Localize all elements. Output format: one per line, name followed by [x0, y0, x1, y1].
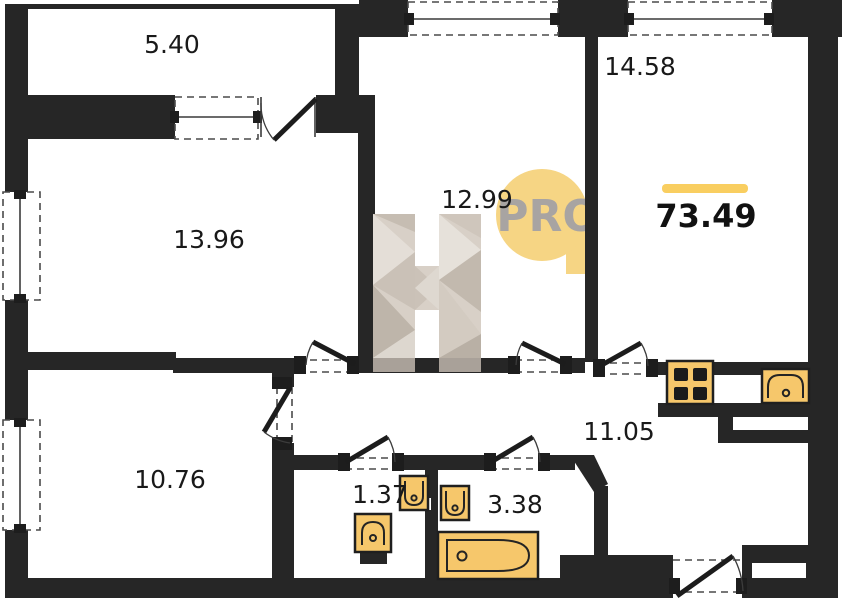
- total-area-bar: [662, 184, 748, 193]
- stove-icon: [667, 361, 713, 404]
- room-label-wc: 1.37: [352, 480, 408, 509]
- floor-plan-page: PRO: [0, 0, 844, 600]
- door-room-13-96: [294, 342, 359, 374]
- room-label-14-58: 14.58: [604, 52, 676, 81]
- room-label-balcony: 5.40: [144, 30, 200, 59]
- door-room-10-76: [264, 377, 292, 450]
- window-left-10-76: [3, 418, 40, 533]
- room-label-hallway: 11.05: [583, 417, 655, 446]
- door-entrance: [669, 556, 747, 596]
- room-label-12-99: 12.99: [441, 185, 513, 214]
- toilet-icon: [355, 514, 391, 564]
- window-top-14-58: [624, 2, 774, 35]
- window-balcony: [170, 97, 262, 139]
- door-balcony: [261, 97, 316, 140]
- wall-niche: [752, 563, 806, 578]
- room-label-bathroom: 3.38: [487, 490, 543, 519]
- total-area-badge: 73.49: [655, 184, 756, 235]
- h-watermark: [373, 214, 481, 372]
- total-area-value: 73.49: [655, 197, 756, 235]
- floor-plan: PRO: [0, 0, 844, 600]
- door-kitchen-14-58: [593, 343, 658, 377]
- door-wc: [338, 437, 404, 471]
- kitchen-sink-icon: [762, 369, 809, 403]
- room-label-13-96: 13.96: [173, 225, 245, 254]
- bathtub-icon: [438, 532, 538, 579]
- window-left-13-96: [3, 190, 40, 303]
- bath-sink-icon: [441, 486, 469, 520]
- door-bathroom: [484, 437, 550, 471]
- door-room-12-99: [508, 343, 572, 374]
- room-label-10-76: 10.76: [134, 465, 206, 494]
- window-top-12-99: [404, 2, 560, 35]
